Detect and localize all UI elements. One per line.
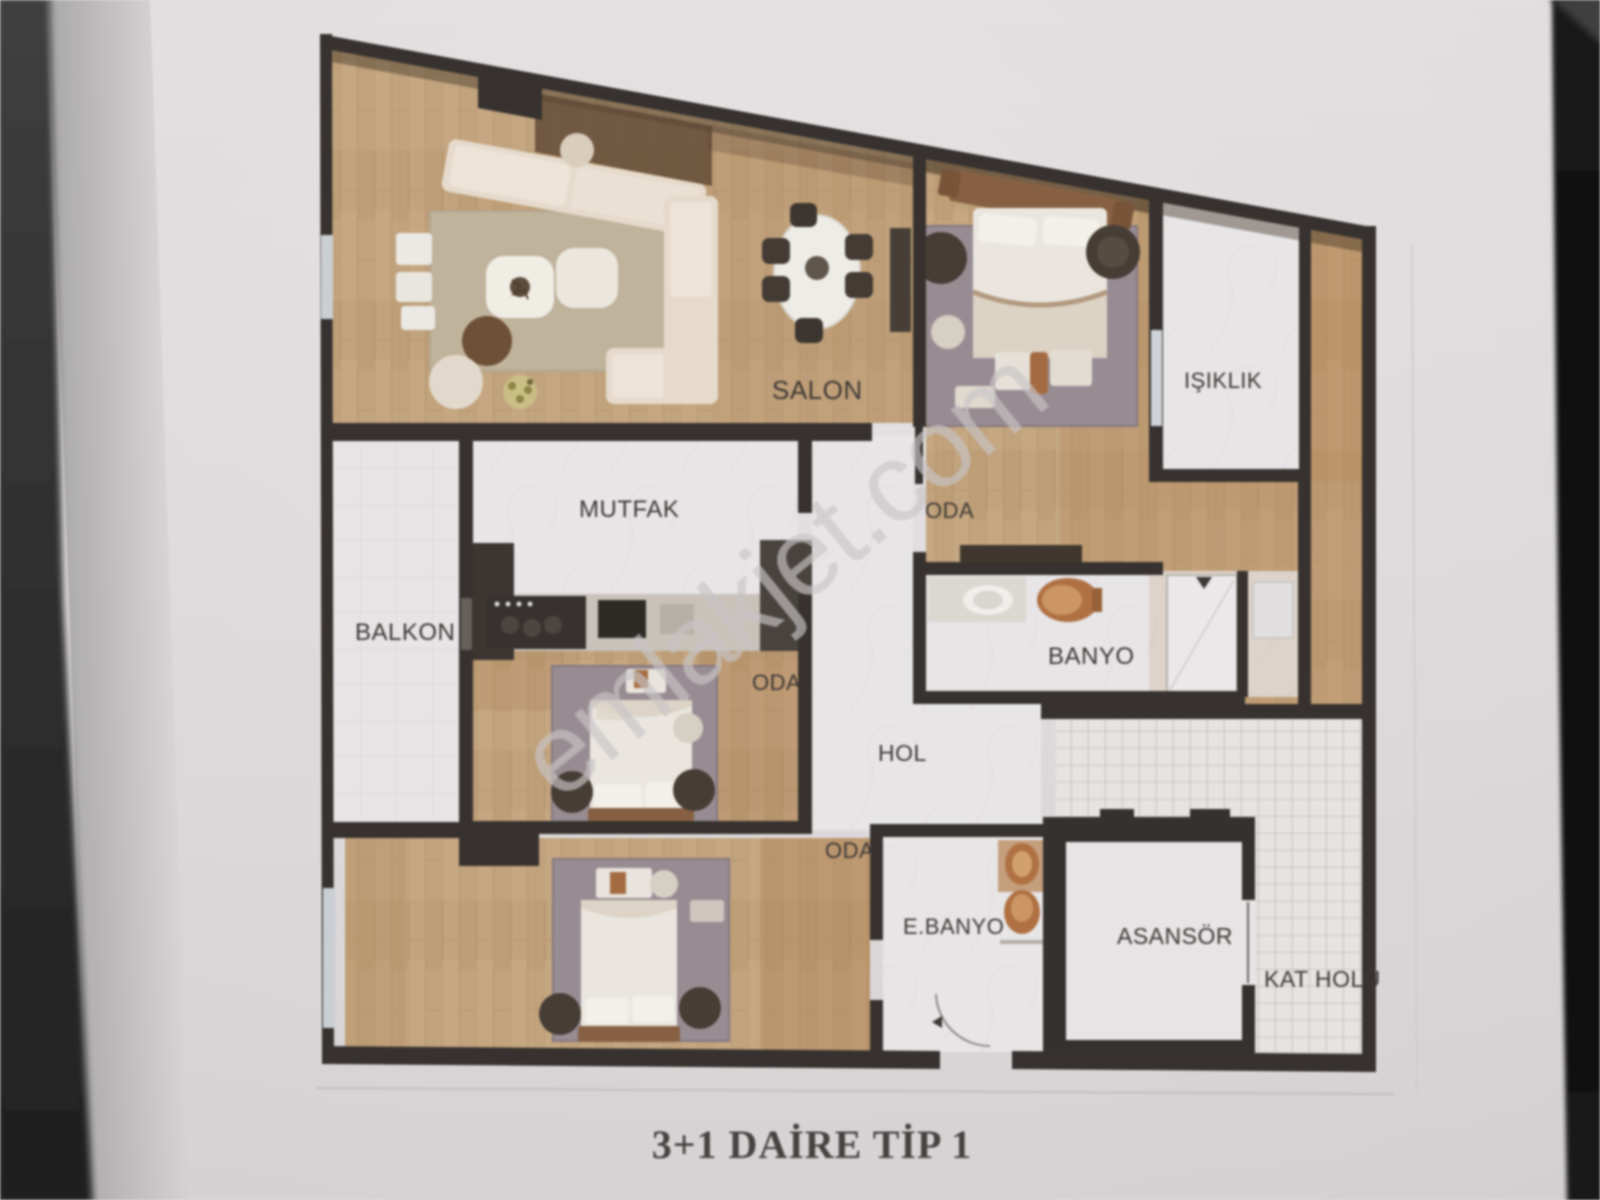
svg-text:ODA: ODA bbox=[825, 838, 874, 863]
svg-text:ASANSÖR: ASANSÖR bbox=[1117, 923, 1233, 949]
svg-text:MUTFAK: MUTFAK bbox=[579, 496, 679, 523]
svg-text:IŞIKLIK: IŞIKLIK bbox=[1184, 368, 1262, 393]
svg-text:BANYO: BANYO bbox=[1048, 643, 1135, 670]
svg-text:BALKON: BALKON bbox=[355, 619, 455, 646]
svg-text:SALON: SALON bbox=[772, 375, 863, 405]
svg-text:3+1 DAİRE TİP 1: 3+1 DAİRE TİP 1 bbox=[652, 1122, 972, 1167]
svg-text:HOL: HOL bbox=[878, 740, 927, 766]
svg-text:ODA: ODA bbox=[752, 670, 801, 695]
svg-text:KAT HOLÜ: KAT HOLÜ bbox=[1264, 966, 1381, 992]
svg-text:E.BANYO: E.BANYO bbox=[903, 914, 1004, 939]
